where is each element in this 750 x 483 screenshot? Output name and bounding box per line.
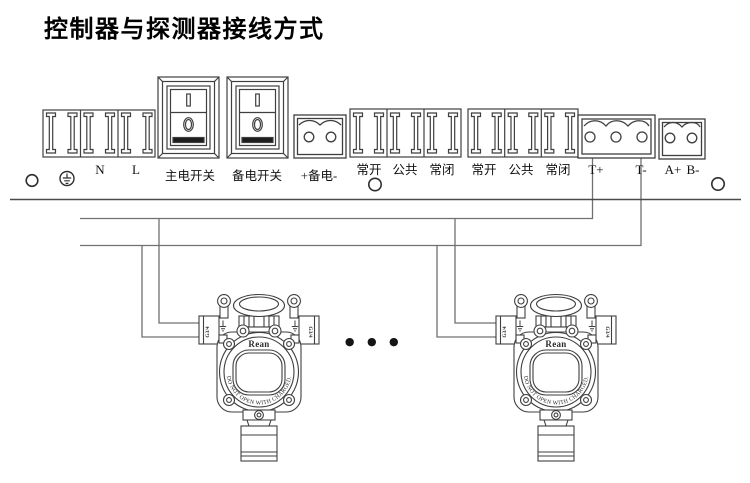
backup-power-connector — [294, 115, 346, 158]
signal-connector — [578, 115, 655, 158]
label-b-minus: B- — [687, 162, 700, 177]
label-live: L — [132, 162, 140, 177]
gas-detector-1: Rean DO NOT OPEN WITH CHARGED. G3/4 G3/4 — [199, 295, 319, 462]
label-relay2-no: 常开 — [471, 163, 496, 177]
detector-logo: Rean — [248, 339, 269, 349]
cable-gland-label-left: G3/4 — [502, 326, 508, 338]
cable-gland-label-left: G3/4 — [205, 326, 211, 338]
label-t-minus: T- — [635, 162, 646, 177]
screw-hole-right-icon — [712, 178, 724, 190]
cable-gland-label-right: G3/4 — [604, 326, 610, 338]
label-relay1-no: 常开 — [356, 163, 381, 177]
relay-block-2 — [468, 109, 578, 157]
main-power-switch — [158, 77, 219, 158]
label-relay1-com: 公共 — [392, 163, 417, 177]
cable-gland-label-right: G3/4 — [307, 326, 313, 338]
label-neutral: N — [95, 162, 105, 177]
label-relay2-nc: 常闭 — [545, 163, 570, 177]
label-main-switch: 主电开关 — [165, 169, 215, 183]
wiring-diagram: 控制器与探测器接线方式 — [0, 0, 750, 483]
gas-detector-2: Rean DO NOT OPEN WITH CHARGED. G3/4 G3/4 — [496, 295, 616, 462]
label-relay1-nc: 常闭 — [429, 163, 454, 177]
label-a-plus: A+ — [665, 162, 682, 177]
more-detectors-ellipsis: ● ● ● — [345, 335, 403, 348]
earth-ground-icon — [60, 172, 74, 186]
detector-logo: Rean — [545, 339, 566, 349]
backup-power-switch — [227, 77, 288, 158]
screw-hole-middle-icon — [369, 178, 381, 190]
label-t-plus: T+ — [588, 162, 603, 177]
screw-hole-left-icon — [26, 175, 38, 187]
relay-block-1 — [350, 109, 461, 157]
rs485-connector — [659, 119, 705, 159]
diagram-canvas: N L 主电开关 备电开关 +备电- 常开 公共 常闭 常开 公共 常闭 T+ … — [0, 0, 750, 483]
label-backup-switch: 备电开关 — [232, 169, 282, 183]
label-backup-power: +备电- — [301, 169, 337, 183]
power-terminal-block — [43, 110, 155, 157]
label-relay2-com: 公共 — [508, 163, 533, 177]
